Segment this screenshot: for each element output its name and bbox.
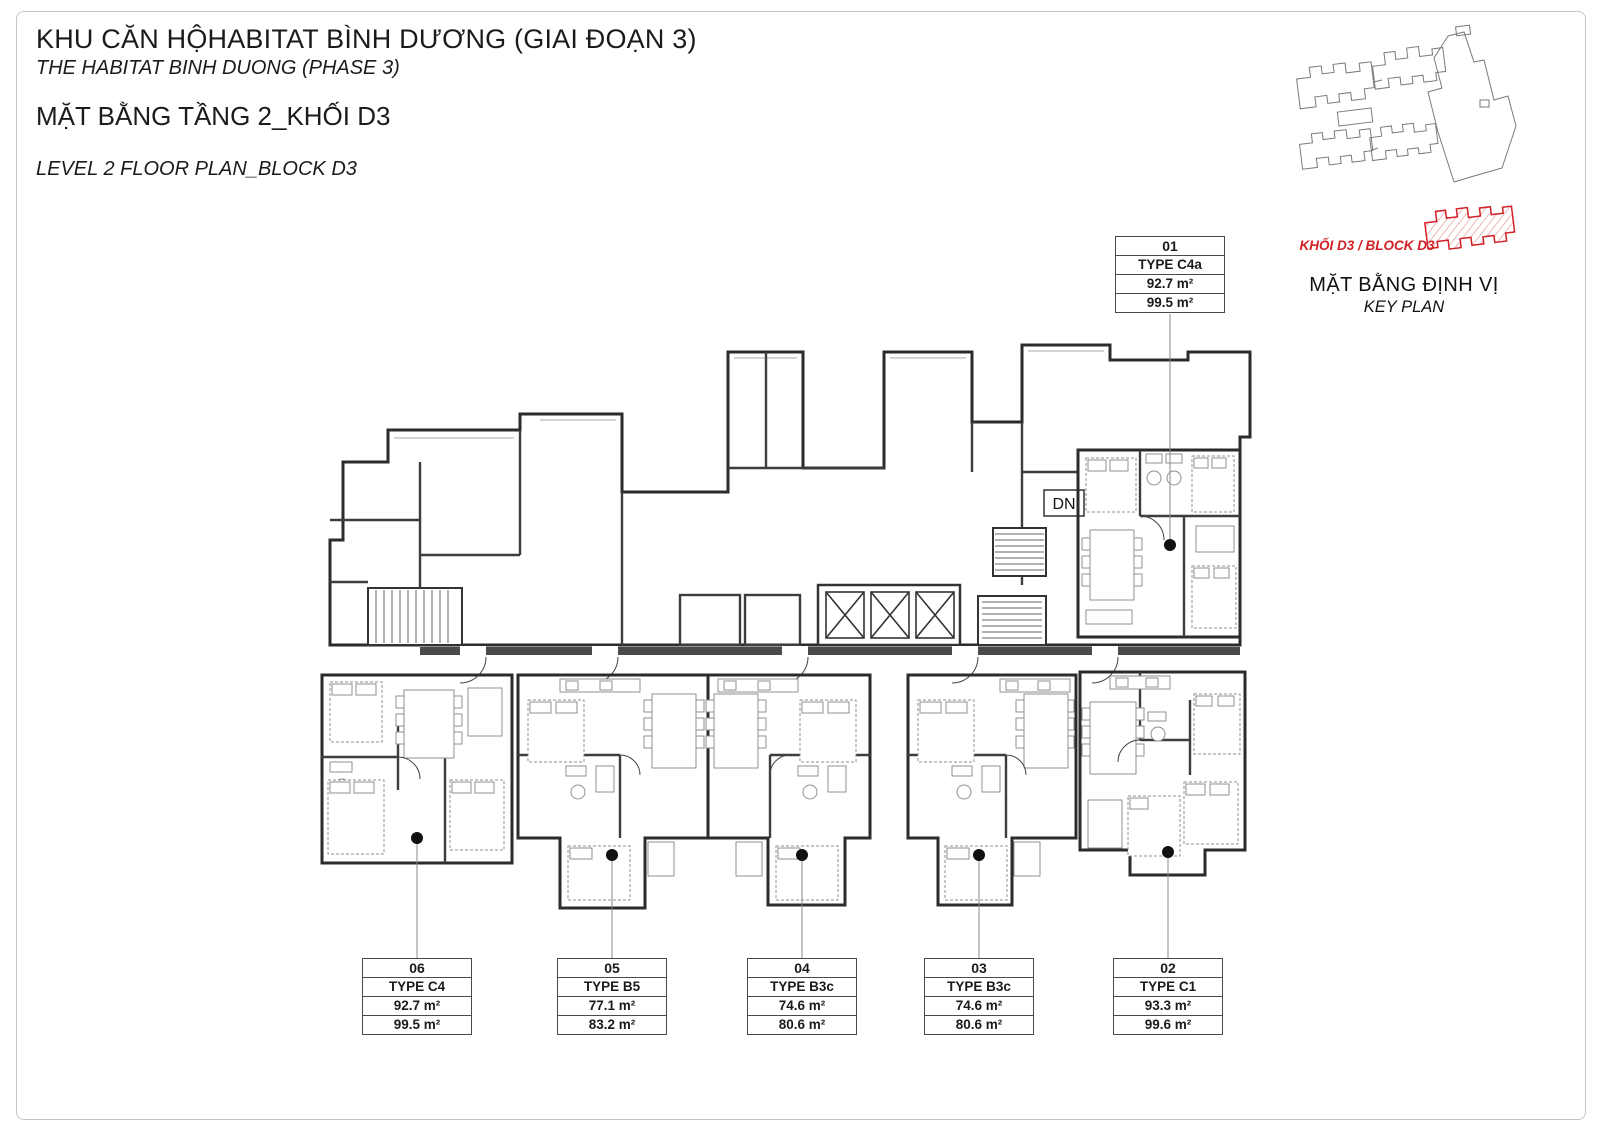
unit-area-2: 99.6 m² [1113,1015,1223,1035]
unit-area-2: 99.5 m² [1115,293,1225,313]
unit-number: 05 [557,958,667,978]
unit-area-2: 80.6 m² [747,1015,857,1035]
unit-type: TYPE B3c [924,977,1034,997]
unit-number: 02 [1113,958,1223,978]
unit-area-1: 92.7 m² [1115,274,1225,294]
unit-number: 01 [1115,236,1225,256]
unit-type: TYPE B5 [557,977,667,997]
unit-label-02[interactable]: 02 TYPE C1 93.3 m² 99.6 m² [1113,958,1223,1035]
unit-area-1: 93.3 m² [1113,996,1223,1016]
unit-type: TYPE C4 [362,977,472,997]
unit-area-1: 74.6 m² [924,996,1034,1016]
key-plan-map [1278,22,1530,262]
unit-label-04[interactable]: 04 TYPE B3c 74.6 m² 80.6 m² [747,958,857,1035]
unit-label-06[interactable]: 06 TYPE C4 92.7 m² 99.5 m² [362,958,472,1035]
block-d3-label: KHỐI D3 / BLOCK D3 [1278,238,1456,253]
unit-02[interactable] [1080,672,1245,875]
stair-west [368,588,462,645]
unit-area-2: 80.6 m² [924,1015,1034,1035]
unit-03[interactable] [908,675,1076,905]
unit-area-2: 83.2 m² [557,1015,667,1035]
unit-label-03[interactable]: 03 TYPE B3c 74.6 m² 80.6 m² [924,958,1034,1035]
floor-plan-sheet: KHU CĂN HỘHABITAT BÌNH DƯƠNG (GIAI ĐOẠN … [0,0,1600,1131]
unit-05[interactable] [518,675,708,908]
stair-east-upper [993,528,1046,576]
unit-label-05[interactable]: 05 TYPE B5 77.1 m² 83.2 m² [557,958,667,1035]
unit-area-1: 77.1 m² [557,996,667,1016]
unit-area-2: 99.5 m² [362,1015,472,1035]
unit-area-1: 74.6 m² [747,996,857,1016]
stair-east-lower [978,596,1046,645]
unit-number: 06 [362,958,472,978]
key-plan-title-en: KEY PLAN [1278,298,1530,317]
unit-type: TYPE B3c [747,977,857,997]
unit-type: TYPE C1 [1113,977,1223,997]
unit-area-1: 92.7 m² [362,996,472,1016]
key-plan: KHỐI D3 / BLOCK D3 MẶT BẰNG ĐỊNH VỊ KEY … [1278,22,1530,334]
unit-number: 03 [924,958,1034,978]
unit-04[interactable] [706,675,870,905]
unit-number: 04 [747,958,857,978]
unit-label-01[interactable]: 01 TYPE C4a 92.7 m² 99.5 m² [1115,236,1225,313]
key-plan-title-vi: MẶT BẰNG ĐỊNH VỊ [1278,274,1530,297]
dn-text: DN [1052,496,1075,513]
unit-type: TYPE C4a [1115,255,1225,275]
elevator-bank [818,585,960,645]
